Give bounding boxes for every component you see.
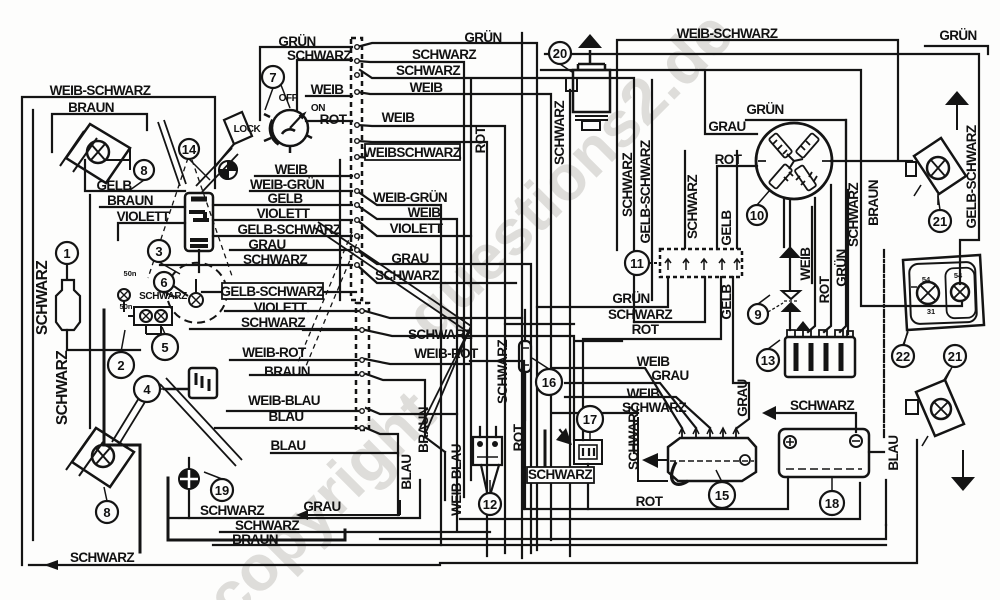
svg-text:VIOLETT: VIOLETT xyxy=(254,300,308,315)
svg-text:15: 15 xyxy=(715,488,729,503)
svg-text:4: 4 xyxy=(143,382,151,397)
svg-text:VIOLETT: VIOLETT xyxy=(117,209,171,224)
svg-text:BLAU: BLAU xyxy=(270,438,305,453)
svg-text:GRÜN: GRÜN xyxy=(939,28,976,43)
svg-text:50n: 50n xyxy=(124,269,137,278)
svg-text:16: 16 xyxy=(542,375,556,390)
svg-text:GRÜN: GRÜN xyxy=(278,34,315,49)
svg-text:SCHWARZ: SCHWARZ xyxy=(552,101,567,165)
svg-text:GRAU: GRAU xyxy=(651,368,688,383)
svg-text:1: 1 xyxy=(63,246,70,261)
svg-text:17: 17 xyxy=(583,412,597,427)
svg-text:7: 7 xyxy=(269,70,276,85)
svg-text:SCHWARZ: SCHWARZ xyxy=(790,398,854,413)
svg-text:WEIB: WEIB xyxy=(311,82,345,97)
svg-text:GRÜN: GRÜN xyxy=(834,249,849,286)
svg-text:WEIB-GRÜN: WEIB-GRÜN xyxy=(373,190,447,205)
svg-text:BRAUN: BRAUN xyxy=(68,100,114,115)
svg-text:5: 5 xyxy=(161,340,168,355)
svg-text:SCHWARZ: SCHWARZ xyxy=(528,467,592,482)
svg-text:GRAU: GRAU xyxy=(708,119,745,134)
svg-text:50n: 50n xyxy=(120,302,133,311)
svg-text:ON: ON xyxy=(311,103,325,114)
svg-text:WEIB: WEIB xyxy=(410,80,444,95)
svg-text:SCHWARZ: SCHWARZ xyxy=(846,183,861,247)
svg-text:6: 6 xyxy=(160,275,167,290)
svg-text:GELB: GELB xyxy=(719,210,734,246)
svg-text:GELB-SCHWARZ: GELB-SCHWARZ xyxy=(237,222,340,237)
svg-text:2: 2 xyxy=(117,358,124,373)
svg-text:SCHWARZ: SCHWARZ xyxy=(620,153,635,217)
svg-text:ROT: ROT xyxy=(715,152,743,167)
svg-text:SCHWARZ: SCHWARZ xyxy=(495,340,510,404)
svg-text:WEIB-ROT: WEIB-ROT xyxy=(242,345,307,360)
svg-text:SCHWARZ: SCHWARZ xyxy=(287,48,351,63)
svg-text:VIOLETT: VIOLETT xyxy=(257,206,311,221)
svg-text:GRÜN: GRÜN xyxy=(746,102,783,117)
svg-text:11: 11 xyxy=(630,256,644,271)
svg-text:8: 8 xyxy=(103,505,110,520)
svg-text:22: 22 xyxy=(896,349,910,364)
svg-text:SCHWARZ: SCHWARZ xyxy=(375,268,439,283)
svg-text:ROT: ROT xyxy=(320,112,348,127)
svg-text:WEIB: WEIB xyxy=(275,162,309,177)
svg-text:ROT: ROT xyxy=(473,125,488,153)
svg-text:19: 19 xyxy=(215,483,229,498)
svg-text:WEIBSCHWARZ: WEIBSCHWARZ xyxy=(364,145,461,160)
svg-text:BRAUN: BRAUN xyxy=(107,193,153,208)
svg-text:SCHWARZ: SCHWARZ xyxy=(626,406,641,470)
svg-text:8: 8 xyxy=(140,163,147,178)
svg-text:21: 21 xyxy=(933,214,947,229)
svg-text:WEIB: WEIB xyxy=(382,110,416,125)
svg-text:GRAU: GRAU xyxy=(735,379,750,416)
svg-text:WEIB: WEIB xyxy=(408,205,442,220)
svg-text:OFF: OFF xyxy=(279,93,298,104)
svg-text:10: 10 xyxy=(750,208,764,223)
svg-text:18: 18 xyxy=(825,496,839,511)
svg-text:SCHWARZ: SCHWARZ xyxy=(235,518,299,533)
svg-text:BLAU: BLAU xyxy=(399,454,414,489)
svg-text:GRAU: GRAU xyxy=(248,237,285,252)
svg-text:SCHWARZ: SCHWARZ xyxy=(54,350,71,425)
svg-text:GELB: GELB xyxy=(719,284,734,320)
svg-text:21: 21 xyxy=(948,349,962,364)
svg-text:12: 12 xyxy=(483,497,497,512)
svg-text:ROT: ROT xyxy=(632,322,660,337)
svg-text:SCHWARZ: SCHWARZ xyxy=(608,307,672,322)
svg-text:GELB-SCHWARZ: GELB-SCHWARZ xyxy=(964,125,979,228)
svg-text:WEIB-BLAU: WEIB-BLAU xyxy=(449,444,464,516)
svg-text:LOCK: LOCK xyxy=(234,124,262,135)
svg-text:GRÜN: GRÜN xyxy=(464,30,501,45)
svg-text:WEIB-GRÜN: WEIB-GRÜN xyxy=(250,177,324,192)
svg-text:ROT: ROT xyxy=(636,494,664,509)
svg-text:BLAU: BLAU xyxy=(268,409,303,424)
svg-text:SCHWARZ: SCHWARZ xyxy=(412,47,476,62)
svg-text:54: 54 xyxy=(954,271,963,280)
svg-text:SCHWARZ: SCHWARZ xyxy=(685,175,700,239)
svg-text:SCHWARZ: SCHWARZ xyxy=(396,63,460,78)
svg-text:BRAUN: BRAUN xyxy=(866,180,881,226)
svg-text:9: 9 xyxy=(754,307,761,322)
svg-text:BLAU: BLAU xyxy=(886,435,901,470)
svg-text:WEIB: WEIB xyxy=(637,354,671,369)
svg-text:WEIB: WEIB xyxy=(798,247,813,281)
svg-text:GELB-SCHWARZ: GELB-SCHWARZ xyxy=(220,284,323,299)
svg-text:SCHWARZ: SCHWARZ xyxy=(70,550,134,565)
svg-text:WEIB: WEIB xyxy=(627,386,661,401)
svg-text:SCHWARZ: SCHWARZ xyxy=(241,315,305,330)
svg-text:WEIB-SCHWARZ: WEIB-SCHWARZ xyxy=(50,83,151,98)
svg-text:ROT: ROT xyxy=(511,423,526,451)
svg-text:31: 31 xyxy=(927,307,935,316)
svg-text:13: 13 xyxy=(761,353,775,368)
svg-text:GELB-SCHWARZ: GELB-SCHWARZ xyxy=(638,140,653,243)
svg-text:WEIB-SCHWARZ: WEIB-SCHWARZ xyxy=(677,26,778,41)
svg-text:3: 3 xyxy=(155,244,162,259)
svg-text:WEIB-ROT: WEIB-ROT xyxy=(414,346,479,361)
svg-text:SCHWARZ: SCHWARZ xyxy=(243,252,307,267)
svg-text:GRÜN: GRÜN xyxy=(612,291,649,306)
svg-text:WEIB-BLAU: WEIB-BLAU xyxy=(248,393,320,408)
svg-text:GELB: GELB xyxy=(267,191,303,206)
svg-text:BRAUN: BRAUN xyxy=(416,407,431,453)
svg-text:BRAUN: BRAUN xyxy=(264,364,310,379)
svg-text:SCHWARZ: SCHWARZ xyxy=(408,327,472,342)
svg-text:GRAU: GRAU xyxy=(391,251,428,266)
svg-text:VIOLETT: VIOLETT xyxy=(390,221,444,236)
svg-text:ROT: ROT xyxy=(817,275,832,303)
svg-text:SCHWARZ: SCHWARZ xyxy=(34,260,51,335)
svg-text:54: 54 xyxy=(922,275,931,284)
svg-text:20: 20 xyxy=(553,46,567,61)
svg-text:SCHWARZ: SCHWARZ xyxy=(200,503,264,518)
svg-text:GRAU: GRAU xyxy=(303,499,340,514)
svg-text:BRAUN: BRAUN xyxy=(232,532,278,547)
svg-text:GELB: GELB xyxy=(96,178,132,193)
svg-text:14: 14 xyxy=(182,142,197,157)
